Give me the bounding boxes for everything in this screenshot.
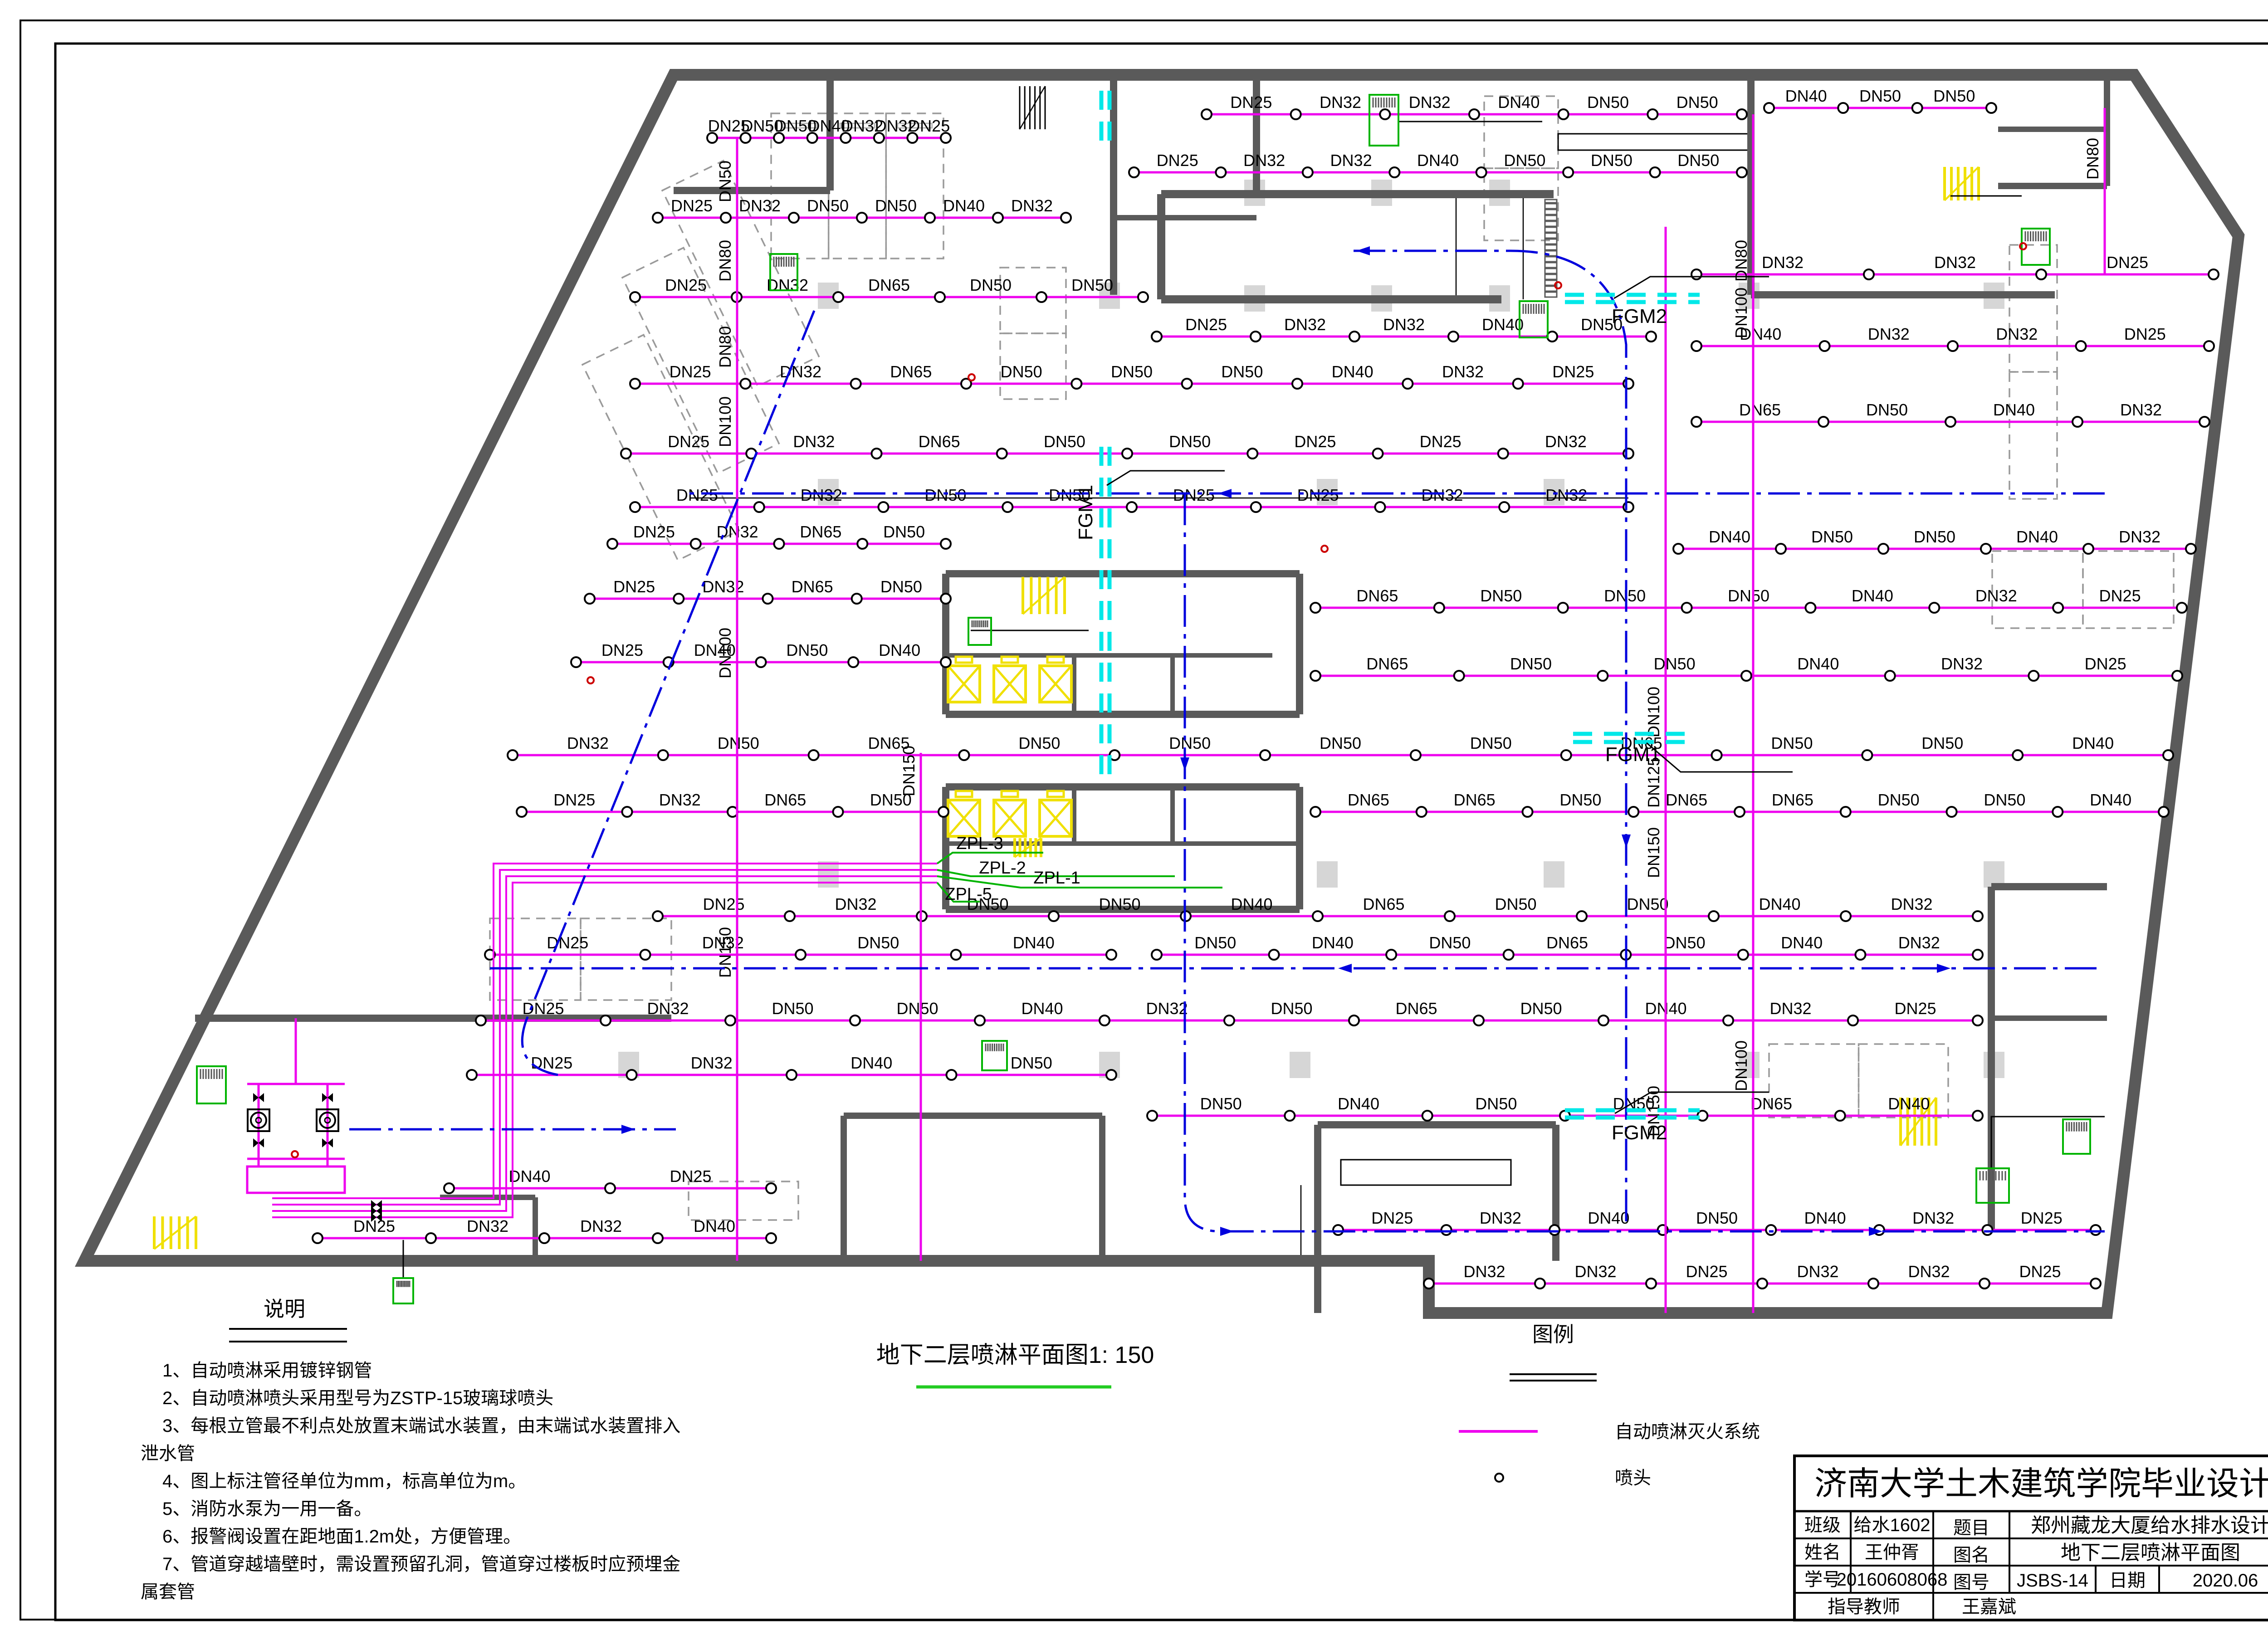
pipe-label: DN25 [2099, 586, 2141, 605]
sprinkler-head [1820, 341, 1830, 351]
sprinkler-head [1049, 911, 1059, 921]
sprinkler-head [1986, 103, 1996, 113]
sprinkler-head [1646, 332, 1656, 342]
pipe-label: DN50 [1866, 400, 1908, 419]
pipe-label: DN32 [835, 895, 876, 913]
sprinkler-head [947, 1070, 957, 1080]
pipe-label: DN65 [1348, 791, 1389, 809]
pipe-label: DN32 [2119, 527, 2160, 546]
sprinkler-head [1349, 1015, 1359, 1025]
pipe-label: DN65 [1739, 400, 1781, 419]
pipe-label: DN40 [1588, 1209, 1629, 1227]
pipe-label: DN50 [1520, 999, 1562, 1018]
pipe-label: DN50 [970, 276, 1012, 294]
sprinkler-head [2200, 417, 2209, 427]
pipe-label: DN50 [1169, 734, 1211, 752]
column [818, 861, 839, 888]
note-line: 泄水管 [141, 1444, 195, 1464]
sprinkler-head [1841, 911, 1851, 921]
sprinkler-head [585, 594, 595, 604]
pipe-label: DN32 [1762, 253, 1804, 272]
sprinkler-head [1442, 1225, 1452, 1235]
sprinkler-head [2076, 341, 2086, 351]
pipe-label: DN40 [1804, 1209, 1846, 1227]
note-line: 2、自动喷淋喷头采用型号为ZSTP-15玻璃球喷头 [162, 1388, 553, 1408]
note-line: 属套管 [141, 1582, 195, 1602]
pipe-label: DN40 [1332, 362, 1374, 381]
pipe-label: DN50 [924, 486, 966, 504]
sprinkler-head [1535, 1279, 1545, 1289]
pipe-label: DN40 [1338, 1094, 1379, 1113]
pipe-label: DN32 [1975, 586, 2017, 605]
sprinkler-head [1838, 103, 1848, 113]
sprinkler-head [2209, 269, 2219, 279]
sprinkler-head [997, 449, 1007, 459]
pipe-label: DN50 [786, 641, 828, 659]
pipe-label: DN32 [1146, 999, 1188, 1018]
pipe-label: DN50 [1591, 151, 1633, 170]
sprinkler-head [1202, 109, 1212, 119]
sprinkler-head [1448, 332, 1458, 342]
sprinkler-head [756, 657, 766, 667]
pipe-label: DN32 [1912, 1209, 1954, 1227]
sprinkler-head [1691, 417, 1701, 427]
sprinkler-head [1313, 911, 1323, 921]
riser-label: ZPL-3 [956, 834, 1003, 853]
pipe-label: DN50 [1914, 527, 1955, 546]
sprinkler-head [852, 594, 862, 604]
sprinkler-head [1106, 1070, 1116, 1080]
sprinkler-head [1291, 109, 1301, 119]
pipe-label: DN25 [671, 196, 713, 215]
sprinkler-head [1973, 1015, 1983, 1025]
sprinkler-head [938, 807, 948, 817]
trunk-label: DN100 [1732, 1040, 1750, 1091]
pipe-label: DN25 [547, 933, 588, 952]
sprinkler-head [1864, 269, 1874, 279]
pipe-label: DN32 [739, 196, 781, 215]
sprinkler-head [1122, 449, 1132, 459]
sprinkler-head [658, 750, 668, 760]
pipe-label: DN40 [943, 196, 985, 215]
sprinkler-head [1147, 1111, 1157, 1121]
pipe-label: DN32 [767, 276, 808, 294]
sprinkler-head [1559, 109, 1569, 119]
pipe-row: DN40DN50DN50 [1764, 87, 1996, 113]
sprinkler-head [1673, 544, 1683, 554]
pipe-label: DN65 [1546, 933, 1588, 952]
pipe-label: DN40 [850, 1054, 892, 1072]
sprinkler-head [1547, 332, 1557, 342]
pipe-label: DN25 [633, 522, 675, 541]
sprinkler-head [1764, 103, 1774, 113]
pipe-label: DN65 [1666, 791, 1707, 809]
sprinkler-head [2083, 544, 2093, 554]
tb-date-value: 2020.06 [2193, 1571, 2258, 1591]
fgm-label: FGM1 [1605, 743, 1661, 766]
sprinkler-head [721, 213, 731, 223]
sprinkler-head [691, 539, 701, 549]
trunk-label: DN150 [716, 927, 734, 978]
pipe-label: DN32 [691, 1054, 733, 1072]
tb-drawing-label: 图名 [1953, 1545, 1989, 1565]
sprinkler-head [1737, 167, 1747, 177]
pipe-label: DN32 [1996, 325, 2038, 343]
trunk-label: DN150 [899, 746, 918, 796]
sprinkler-head [941, 594, 951, 604]
sprinkler-head [2204, 341, 2214, 351]
pipe-label: DN40 [1888, 1094, 1930, 1113]
pipe-label: DN32 [1891, 895, 1932, 913]
pipe-label: DN50 [1011, 1054, 1052, 1072]
sprinkler-head [959, 750, 969, 760]
sprinkler-head [941, 539, 951, 549]
sprinkler-head [833, 292, 843, 302]
pipe-label: DN50 [896, 999, 938, 1018]
sprinkler-head [1712, 750, 1722, 760]
sprinkler-head [787, 1070, 797, 1080]
sprinkler-head [1741, 671, 1751, 681]
trunk-label: DN80 [716, 326, 734, 368]
tb-drawing-value: 地下二层喷淋平面图 [2061, 1542, 2240, 1564]
pipe-label: DN25 [1552, 362, 1594, 381]
note-line: 3、每根立管最不利点处放置末端试水装置，由末端试水装置排入 [162, 1416, 680, 1436]
sprinkler-head [1738, 950, 1748, 960]
sprinkler-head [1424, 1279, 1434, 1289]
sprinkler-head [476, 1015, 486, 1025]
notes-title: 说明 [264, 1297, 305, 1321]
pipe-label: DN40 [1021, 999, 1063, 1018]
sprinkler-head [857, 539, 867, 549]
pipe-label: DN40 [1482, 315, 1524, 334]
tb-name-label: 姓名 [1804, 1542, 1841, 1562]
sprinkler-head [2163, 750, 2173, 760]
sprinkler-head [1948, 341, 1958, 351]
sprinkler-head [993, 213, 1003, 223]
pipe-label: DN50 [1271, 999, 1312, 1018]
pipe-label: DN40 [1498, 93, 1540, 112]
pipe-label: DN50 [1677, 93, 1718, 112]
sprinkler-head [2028, 671, 2038, 681]
legend-head-label: 喷头 [1615, 1468, 1651, 1488]
sprinkler-head [426, 1233, 436, 1243]
pipe-label: DN40 [1231, 895, 1272, 913]
sprinkler-head [1216, 167, 1226, 177]
note-line: 4、图上标注管径单位为mm，标高单位为m。 [162, 1471, 526, 1491]
sprinkler-head [1247, 449, 1257, 459]
sprinkler-head [2186, 544, 2196, 554]
sprinkler-head [674, 594, 684, 604]
sprinkler-head [2053, 807, 2063, 817]
sprinkler-head [1929, 603, 1939, 613]
pipe-label: DN25 [670, 362, 711, 381]
sprinkler-head [1269, 950, 1279, 960]
pipe-label: DN25 [1294, 432, 1336, 451]
pipe-row: DN25DN32DN65DN50DN50DN50DN40DN32DN25 [630, 362, 1633, 389]
sprinkler-head [1598, 1015, 1608, 1025]
pipe-label: DN65 [1750, 1094, 1792, 1113]
pipe-label: DN32 [1898, 933, 1940, 952]
sprinkler-head [653, 1233, 663, 1243]
pipe-label: DN65 [1395, 999, 1437, 1018]
sprinkler-head [1868, 1279, 1878, 1289]
pipe-label: DN32 [1421, 486, 1463, 504]
sprinkler-head [2053, 603, 2063, 613]
sprinkler-head [1127, 502, 1137, 512]
pipe-label: DN50 [1933, 87, 1975, 105]
sprinkler-head [1523, 807, 1533, 817]
pipe-label: DN32 [1320, 93, 1361, 112]
sprinkler-head [1513, 379, 1523, 389]
pipe-label: DN32 [1769, 999, 1811, 1018]
sprinkler-head [1980, 1279, 1989, 1289]
note-line: 5、消防水泵为一用一备。 [162, 1499, 372, 1519]
pipe-label: DN65 [792, 577, 833, 596]
column [1317, 861, 1338, 888]
sprinkler-head [1973, 950, 1983, 960]
sprinkler-head [1973, 911, 1983, 921]
sprinkler-head [1504, 950, 1514, 960]
trunk-label: DN80 [716, 240, 734, 282]
pipe-label: DN32 [793, 432, 835, 451]
sprinkler-head [1310, 807, 1320, 817]
pipe-label: DN25 [1297, 486, 1339, 504]
pipe-label: DN40 [1852, 586, 1893, 605]
sprinkler-head [2172, 671, 2182, 681]
sprinkler-head [1735, 807, 1745, 817]
pipe-label: DN65 [1454, 791, 1496, 809]
sprinkler-head [766, 1233, 776, 1243]
pipe-label: DN50 [875, 196, 917, 215]
sprinkler-head [1878, 544, 1888, 554]
pipe-label: DN32 [1574, 1262, 1616, 1281]
pipe-label: DN32 [580, 1217, 622, 1235]
pipe-label: DN32 [467, 1217, 508, 1235]
tb-advisor-value: 王嘉斌 [1962, 1597, 2016, 1617]
tb-title: 济南大学土木建筑学院毕业设计 [1814, 1466, 2268, 1502]
pipe-label: DN40 [2016, 527, 2058, 546]
pipe-label: DN25 [531, 1054, 572, 1072]
column [1290, 1052, 1310, 1078]
sprinkler-head [833, 807, 843, 817]
pipe-label: DN50 [1984, 791, 2025, 809]
sprinkler-head [313, 1233, 323, 1243]
tb-date-label: 日期 [2109, 1571, 2146, 1591]
pipe-label: DN50 [1194, 933, 1236, 952]
tb-sid-value: 20160608068 [1837, 1570, 1948, 1590]
pipe-label: DN25 [601, 641, 643, 659]
sprinkler-head [1474, 1015, 1484, 1025]
sprinkler-head [850, 1015, 860, 1025]
sprinkler-head [1848, 1015, 1858, 1025]
sprinkler-head [1628, 807, 1638, 817]
pipe-label: DN32 [1463, 1262, 1505, 1281]
sprinkler-head [2072, 417, 2082, 427]
sprinkler-head [2159, 807, 2169, 817]
pipe-label: DN40 [1781, 933, 1823, 952]
pipe-label: DN40 [1417, 151, 1459, 170]
pipe-label: DN50 [772, 999, 813, 1018]
pipe-label: DN50 [857, 933, 899, 952]
trunk-label: DN80 [1732, 240, 1750, 282]
sprinkler-head [1982, 1225, 1992, 1235]
pipe-label: DN50 [1728, 586, 1769, 605]
sprinkler-head [857, 213, 867, 223]
pipe-label: DN50 [1071, 276, 1113, 294]
pipe-label: DN25 [2085, 654, 2126, 673]
sprinkler-head [1260, 750, 1270, 760]
sprinkler-head [872, 449, 882, 459]
pipe-label: DN50 [1429, 933, 1471, 952]
tb-sid-label: 学号 [1804, 1570, 1841, 1590]
pipe-label: DN25 [665, 276, 707, 294]
pipe-label: DN32 [1383, 315, 1425, 334]
pipe-label: DN50 [1627, 895, 1668, 913]
sprinkler-head [1129, 167, 1139, 177]
sprinkler-head [1380, 109, 1390, 119]
sprinkler-head [621, 449, 631, 459]
sprinkler-head [848, 657, 858, 667]
pipe-label: DN50 [1696, 1209, 1738, 1227]
pipe-label: DN40 [1759, 895, 1800, 913]
pipe-row: DN25DN50DN50DN40DN32DN32DN25 [707, 117, 951, 143]
sprinkler-head [1598, 671, 1608, 681]
sprinkler-head [1310, 603, 1320, 613]
sprinkler-head [1454, 671, 1464, 681]
pipe-label: DN25 [2107, 253, 2148, 272]
pipe-label: DN65 [1772, 791, 1813, 809]
sprinkler-head [640, 950, 650, 960]
pipe-label: DN32 [1545, 432, 1587, 451]
pipe-label: DN40 [1709, 527, 1750, 546]
pipe-label: DN50 [883, 522, 925, 541]
pipe-label: DN50 [1221, 362, 1263, 381]
sprinkler-head [1422, 1111, 1432, 1121]
sprinkler-head [517, 807, 527, 817]
pipe-label: DN50 [1320, 734, 1361, 752]
sprinkler-head [508, 750, 518, 760]
sprinkler-head [1152, 950, 1162, 960]
sprinkler-head [1251, 502, 1261, 512]
pipe-label: DN25 [613, 577, 655, 596]
sprinkler-head [1349, 332, 1359, 342]
sprinkler-head [1375, 502, 1385, 512]
sprinkler-head [935, 292, 945, 302]
sprinkler-head [467, 1070, 477, 1080]
sprinkler-head [1224, 1015, 1234, 1025]
sprinkler-head [1434, 603, 1444, 613]
sprinkler-head [1036, 292, 1046, 302]
pipe-label: DN25 [1157, 151, 1198, 170]
sprinkler-head [1682, 603, 1692, 613]
trunk-label: DN100 [1732, 288, 1750, 338]
pipe-label: DN32 [1442, 362, 1484, 381]
pipe-label: DN25 [2019, 1262, 2061, 1281]
pipe-label: DN25 [703, 895, 744, 913]
sprinkler-head [785, 911, 795, 921]
sprinkler-head [1841, 807, 1851, 817]
sprinkler-head [1303, 167, 1313, 177]
sprinkler-head [1002, 502, 1012, 512]
pipe-label: DN65 [1356, 586, 1398, 605]
pipe-label: DN32 [1941, 654, 1983, 673]
pipe-label: DN50 [1480, 586, 1522, 605]
sprinkler-head [1647, 109, 1657, 119]
pipe-label: DN50 [1044, 432, 1085, 451]
pipe-label: DN50 [807, 196, 849, 215]
pipe-label: DN65 [868, 276, 910, 294]
sprinkler-head [2091, 1279, 2101, 1289]
sprinkler-head [766, 1183, 776, 1193]
drawing-sheet: DN40DN50DN50DN25DN32DN32DN40DN50DN50DN25… [0, 0, 2268, 1640]
pipe-label: DN40 [1993, 400, 2035, 419]
sprinkler-head [1417, 807, 1427, 817]
pipe-label: DN50 [1559, 791, 1601, 809]
pipe-label: DN65 [1363, 895, 1404, 913]
sprinkler-head [1071, 379, 1081, 389]
tb-advisor-label: 指导教师 [1828, 1597, 1900, 1617]
sprinkler-head [601, 1015, 611, 1025]
pipe-label: DN50 [1200, 1094, 1242, 1113]
pipe-label: DN25 [1371, 1209, 1413, 1227]
sprinkler-head [740, 379, 750, 389]
sprinkler-head [2091, 1225, 2101, 1235]
pipe-label: DN40 [2072, 734, 2114, 752]
pipe-label: DN32 [659, 791, 701, 809]
sprinkler-head [2036, 269, 2046, 279]
sprinkler-head [1549, 1225, 1559, 1235]
pipe-label: DN25 [668, 432, 709, 451]
sprinkler-head [2013, 750, 2023, 760]
sprinkler-head [1776, 544, 1786, 554]
pipe-label: DN25 [1173, 486, 1215, 504]
sprinkler-head [1650, 167, 1660, 177]
sprinkler-head [1182, 379, 1192, 389]
caption-text: 地下二层喷淋平面图1: 150 [876, 1342, 1154, 1368]
sprinkler-head [571, 657, 581, 667]
sprinkler-head [605, 1183, 615, 1193]
pipe-label: DN50 [1470, 734, 1512, 752]
sprinkler-head [1106, 950, 1116, 960]
sprinkler-head [1498, 449, 1508, 459]
sprinkler-head [1152, 332, 1162, 342]
sprinkler-head [809, 750, 819, 760]
tb-class-label: 班级 [1804, 1515, 1841, 1535]
sprinkler-head [630, 379, 640, 389]
sprinkler-head [1386, 950, 1396, 960]
pipe-label: DN32 [1480, 1209, 1521, 1227]
pipe-label: DN65 [890, 362, 932, 381]
sprinkler-head [1292, 379, 1302, 389]
pipe-label: DN50 [880, 577, 922, 596]
pipe-label: DN32 [1243, 151, 1285, 170]
sprinkler-head [607, 539, 617, 549]
trunk-label: DN150 [1644, 827, 1663, 878]
note-line: 1、自动喷淋采用镀锌钢管 [162, 1361, 372, 1381]
sprinkler-head [1818, 417, 1828, 427]
trunk-label: DN100 [716, 396, 734, 447]
sprinkler-head [1945, 417, 1955, 427]
pipe-label: DN50 [1504, 151, 1545, 170]
tb-name-value: 王仲胥 [1865, 1542, 1919, 1562]
pipe-label: DN50 [1921, 734, 1963, 752]
sprinkler-head [1723, 1015, 1733, 1025]
column [1544, 861, 1564, 888]
pipe-label: DN32 [1868, 325, 1910, 343]
pipe-label: DN50 [1771, 734, 1813, 752]
sprinkler-head [1947, 807, 1957, 817]
pipe-label: DN32 [1908, 1262, 1950, 1281]
